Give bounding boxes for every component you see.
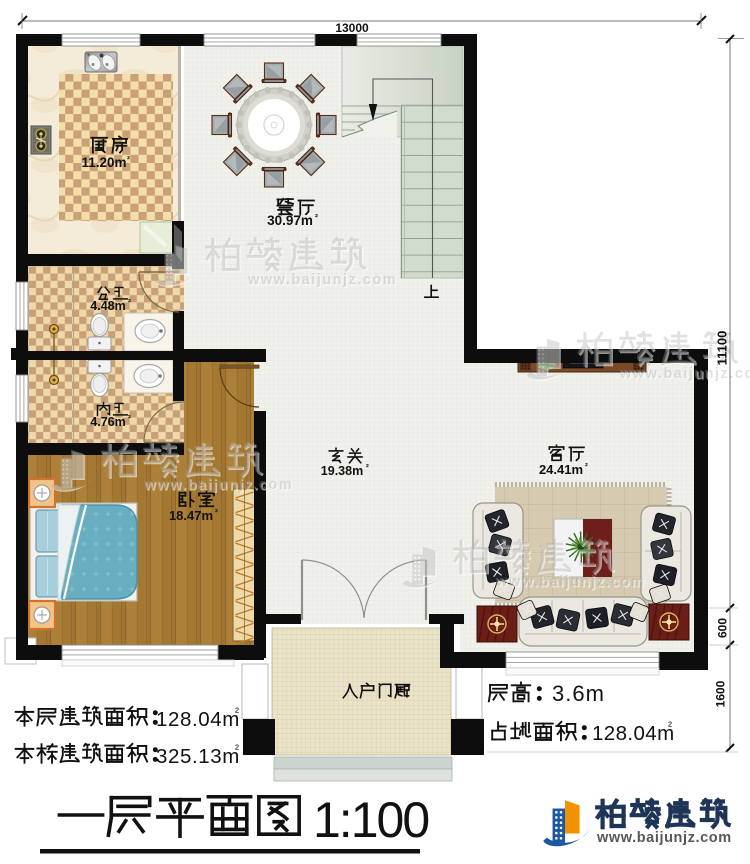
svg-text:²: ² <box>127 154 130 164</box>
svg-text:²: ² <box>315 212 318 222</box>
svg-text:²: ² <box>128 297 131 307</box>
svg-text:www.baijunjz.com: www.baijunjz.com <box>247 272 397 288</box>
svg-text:4.48m: 4.48m <box>90 299 125 313</box>
svg-text:30.97m: 30.97m <box>267 213 313 228</box>
svg-text:600: 600 <box>716 618 730 638</box>
svg-text:²: ² <box>235 705 239 719</box>
svg-text:1600: 1600 <box>714 680 728 707</box>
svg-text:11.20m: 11.20m <box>81 155 126 170</box>
svg-text:18.47m: 18.47m <box>169 508 213 523</box>
svg-text:128.04m: 128.04m <box>156 708 240 731</box>
svg-text:²: ² <box>215 507 218 517</box>
svg-text:4.76m: 4.76m <box>90 415 125 429</box>
svg-text:128.04m: 128.04m <box>592 722 675 745</box>
svg-text:²: ² <box>235 742 239 756</box>
svg-text:13000: 13000 <box>335 21 369 35</box>
svg-text:www.baijunjz.com: www.baijunjz.com <box>596 830 732 846</box>
svg-text:325.13m: 325.13m <box>156 745 240 768</box>
svg-text:www.baijunjz.com: www.baijunjz.com <box>143 477 293 493</box>
svg-text:24.41m: 24.41m <box>539 462 583 477</box>
svg-text:²: ² <box>668 719 672 733</box>
svg-text:www.baijunjz.com: www.baijunjz.com <box>495 574 645 590</box>
svg-text:1:100: 1:100 <box>313 792 428 848</box>
svg-text:19.38m: 19.38m <box>321 464 363 478</box>
svg-text:²: ² <box>585 461 588 471</box>
svg-text:²: ² <box>366 462 369 472</box>
svg-text:²: ² <box>128 413 131 423</box>
svg-text:3.6m: 3.6m <box>552 681 605 706</box>
svg-text:11100: 11100 <box>715 331 730 366</box>
